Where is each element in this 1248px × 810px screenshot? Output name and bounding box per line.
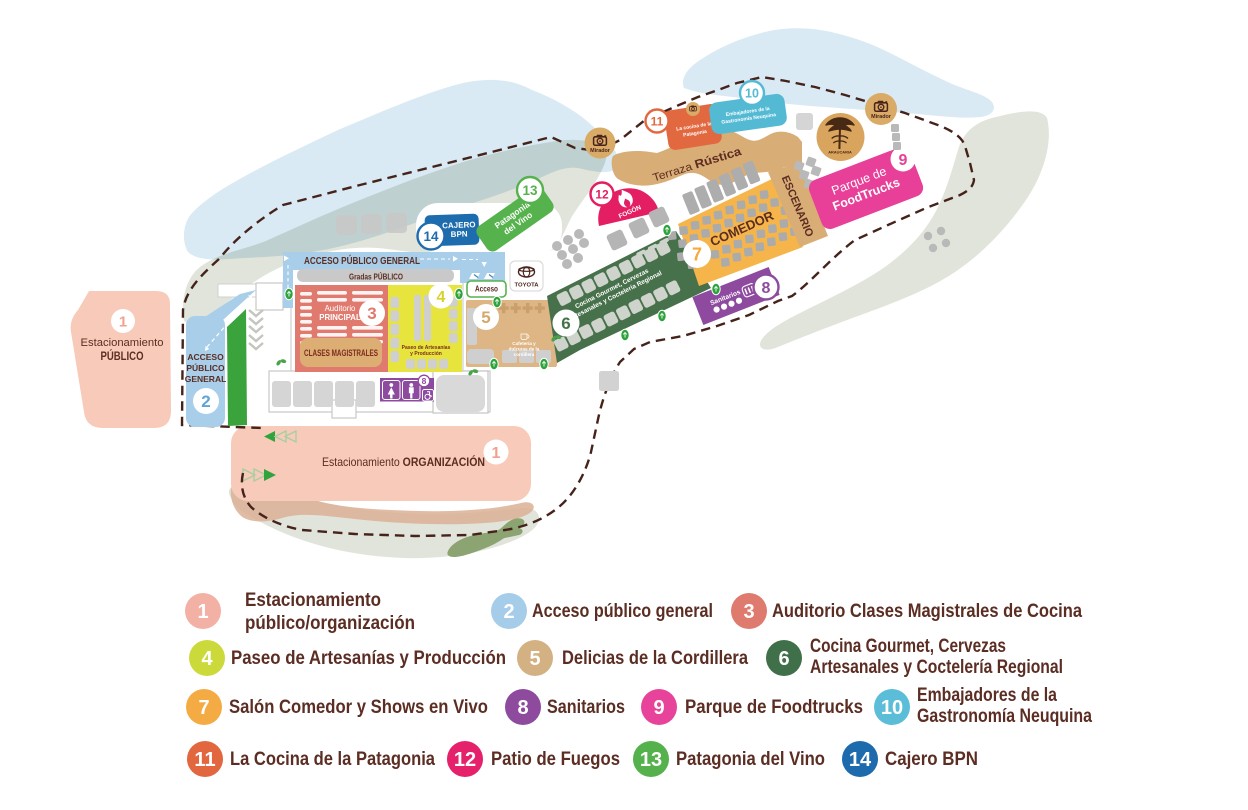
svg-text:BPN: BPN: [451, 229, 468, 239]
svg-text:8: 8: [422, 376, 427, 386]
svg-text:Patagonia del Vino: Patagonia del Vino: [676, 749, 825, 770]
svg-text:Sanitarios: Sanitarios: [547, 697, 625, 718]
svg-text:y Producción: y Producción: [410, 351, 442, 357]
svg-text:4: 4: [201, 648, 213, 670]
svg-text:cordillera: cordillera: [514, 352, 535, 357]
svg-text:PRINCIPAL: PRINCIPAL: [319, 313, 361, 322]
svg-text:público/organización: público/organización: [245, 613, 415, 634]
svg-text:Gradas PÚBLICO: Gradas PÚBLICO: [349, 271, 403, 282]
svg-text:5: 5: [529, 648, 540, 670]
svg-text:Estacionamiento: Estacionamiento: [245, 590, 381, 611]
svg-text:Acceso: Acceso: [475, 285, 498, 294]
svg-text:Gastronomía Neuquina: Gastronomía Neuquina: [917, 706, 1092, 727]
svg-text:Artesanales y Coctelería Regio: Artesanales y Coctelería Regional: [810, 657, 1063, 678]
svg-text:3: 3: [367, 304, 376, 323]
svg-text:8: 8: [762, 280, 771, 297]
svg-text:6: 6: [778, 648, 789, 670]
svg-text:8: 8: [517, 697, 528, 719]
svg-text:Estacionamiento: Estacionamiento: [81, 337, 164, 349]
svg-text:14: 14: [423, 229, 439, 244]
svg-text:11: 11: [194, 749, 215, 771]
svg-text:GENERAL: GENERAL: [185, 374, 227, 384]
svg-text:TOYOTA: TOYOTA: [515, 283, 539, 289]
svg-text:Embajadores de la: Embajadores de la: [917, 685, 1057, 706]
svg-text:10: 10: [881, 697, 903, 719]
svg-text:7: 7: [198, 697, 209, 719]
svg-text:Patio de Fuegos: Patio de Fuegos: [491, 749, 620, 770]
svg-text:10: 10: [745, 87, 759, 101]
svg-text:4: 4: [437, 289, 446, 306]
svg-text:1: 1: [119, 313, 127, 330]
svg-text:Salón Comedor y Shows en Vivo: Salón Comedor y Shows en Vivo: [229, 697, 488, 718]
svg-text:PÚBLICO: PÚBLICO: [101, 350, 144, 363]
svg-text:Cafetería y: Cafetería y: [512, 341, 536, 346]
svg-text:Mirador: Mirador: [871, 114, 892, 120]
svg-text:7: 7: [692, 245, 702, 265]
svg-text:13: 13: [640, 749, 662, 771]
svg-text:2: 2: [201, 392, 210, 411]
svg-text:dulzuras de la: dulzuras de la: [509, 347, 540, 352]
svg-text:PÚBLICO: PÚBLICO: [186, 362, 225, 373]
svg-text:ACCESO: ACCESO: [187, 352, 224, 362]
svg-text:2: 2: [503, 601, 514, 623]
svg-text:12: 12: [595, 187, 609, 201]
svg-text:Cajero BPN: Cajero BPN: [885, 749, 978, 770]
svg-text:Auditorio Clases Magistrales d: Auditorio Clases Magistrales de Cocina: [772, 601, 1082, 622]
svg-text:La Cocina de la Patagonia: La Cocina de la Patagonia: [230, 749, 435, 770]
svg-text:3: 3: [743, 601, 754, 623]
svg-text:9: 9: [899, 152, 908, 169]
svg-text:14: 14: [849, 749, 872, 771]
svg-text:11: 11: [651, 114, 664, 128]
svg-text:ARAUCARIA: ARAUCARIA: [828, 150, 852, 155]
svg-text:13: 13: [522, 183, 538, 198]
svg-text:1: 1: [492, 445, 501, 462]
svg-text:Delicias de la Cordillera: Delicias de la Cordillera: [562, 648, 748, 669]
svg-text:Parque de Foodtrucks: Parque de Foodtrucks: [685, 697, 863, 718]
svg-text:Estacionamiento ORGANIZACIÓN: Estacionamiento ORGANIZACIÓN: [322, 454, 485, 469]
svg-text:Cocina Gourmet, Cervezas: Cocina Gourmet, Cervezas: [810, 636, 1006, 657]
svg-text:5: 5: [481, 308, 490, 327]
svg-text:6: 6: [561, 314, 570, 333]
svg-text:Auditorio: Auditorio: [325, 304, 356, 313]
svg-text:9: 9: [653, 697, 664, 719]
svg-text:Acceso público general: Acceso público general: [532, 601, 713, 622]
svg-text:12: 12: [454, 749, 476, 771]
svg-text:ACCESO PÚBLICO GENERAL: ACCESO PÚBLICO GENERAL: [304, 254, 420, 267]
svg-text:1: 1: [197, 601, 208, 623]
svg-text:CLASES MAGISTRALES: CLASES MAGISTRALES: [304, 348, 378, 359]
svg-text:Mirador: Mirador: [590, 148, 611, 154]
svg-text:Paseo de Artesanías y Producci: Paseo de Artesanías y Producción: [231, 648, 506, 669]
